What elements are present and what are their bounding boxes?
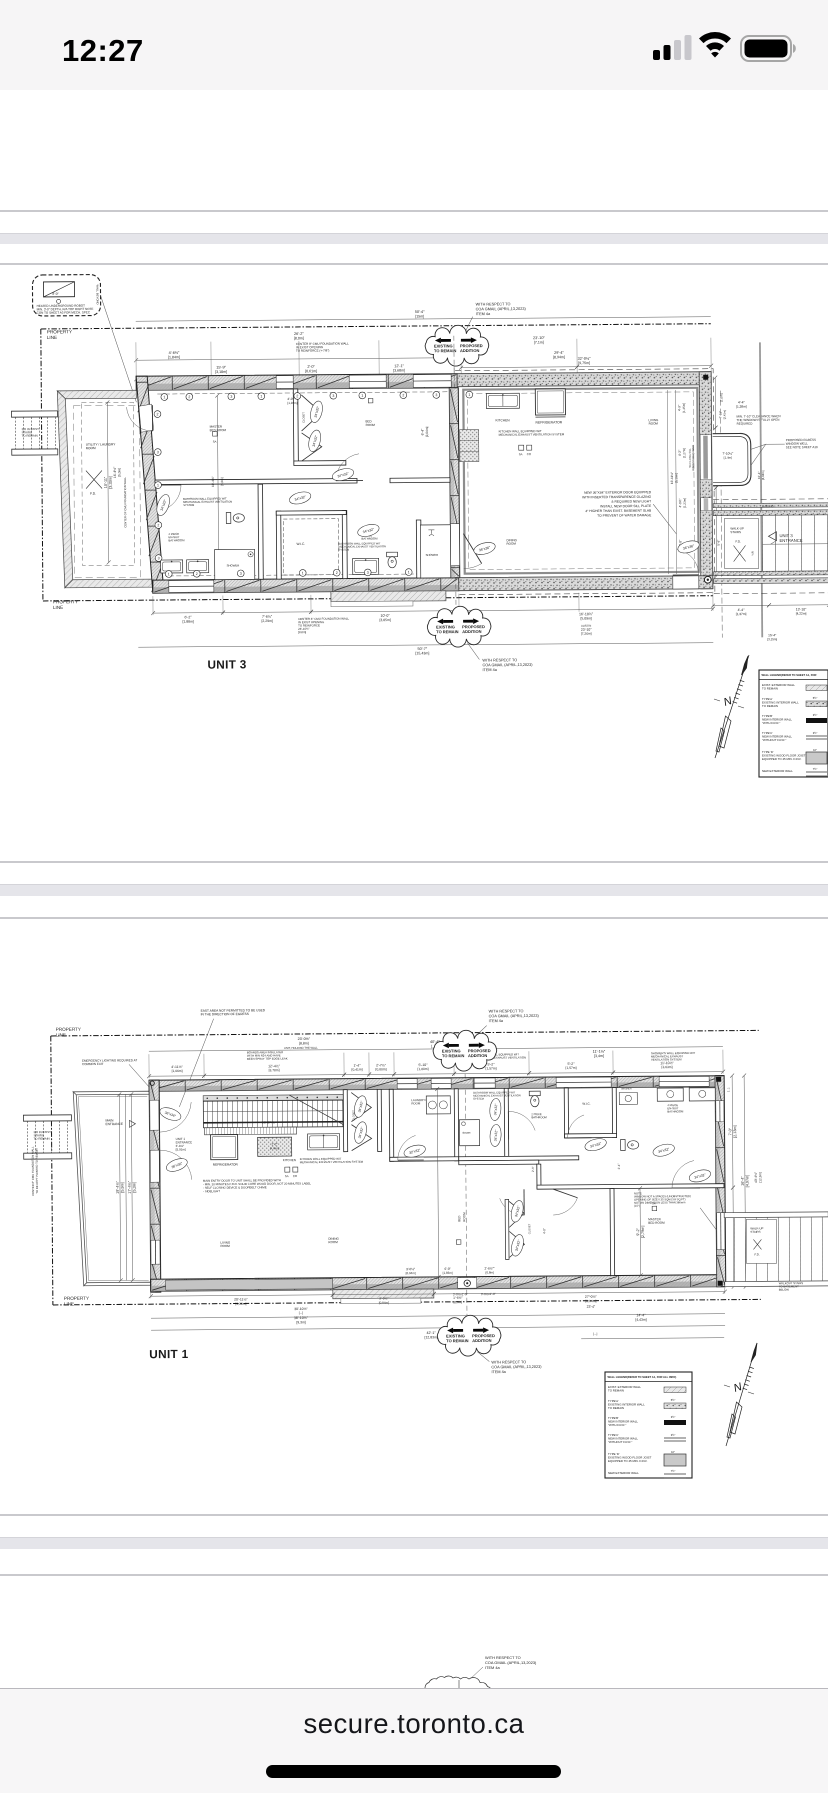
svg-text:CENTER OF CMU FOUNDATION WALL: CENTER OF CMU FOUNDATION WALL [123, 477, 127, 528]
svg-text:W.I.C.: W.I.C. [582, 1102, 590, 1106]
svg-text:TO REMAIN: TO REMAIN [446, 1338, 469, 1343]
svg-text:WITH RESPECT TO: WITH RESPECT TO [482, 658, 517, 662]
svg-text:½R: ½R [751, 551, 755, 555]
svg-text:UNIT 1: UNIT 1 [149, 1347, 188, 1361]
svg-text:[1,57m]: [1,57m] [566, 1066, 577, 1070]
svg-text:4'-0": 4'-0" [542, 1228, 546, 1234]
svg-text:ROOM: ROOM [86, 446, 96, 450]
svg-text:[2,13m]: [2,13m] [733, 1125, 737, 1138]
svg-text:1: 1 [468, 393, 470, 397]
svg-text:16'-4½": 16'-4½" [211, 476, 215, 487]
svg-text:TO REMAIN: TO REMAIN [608, 1389, 624, 1393]
svg-text:[1,27m]: [1,27m] [682, 448, 686, 458]
svg-text:IN THE DIRECTION OF EGRESS: IN THE DIRECTION OF EGRESS [201, 1012, 249, 1016]
svg-text:[0,61m]: [0,61m] [305, 369, 317, 373]
svg-text:[5,0m]: [5,0m] [117, 468, 121, 477]
svg-text:[4,43m]: [4,43m] [635, 1318, 646, 1322]
svg-text:10'-11": 10'-11" [104, 476, 108, 488]
svg-text:1: 1 [168, 572, 170, 576]
svg-text:[0,5m]: [0,5m] [454, 1300, 463, 1304]
svg-text:[1,84m]: [1,84m] [168, 355, 180, 359]
svg-text:8'-0": 8'-0" [52, 292, 58, 296]
svg-text:ROOM: ROOM [328, 1240, 338, 1244]
svg-text:[8,8m]: [8,8m] [298, 630, 306, 634]
svg-text:CLOSET: CLOSET [527, 1223, 531, 1234]
svg-text:[1,37m]: [1,37m] [736, 612, 747, 616]
svg-text:BELOW: BELOW [779, 1288, 789, 1292]
svg-text:[1,57m]: [1,57m] [486, 1066, 497, 1070]
svg-text:REFRIGERATOR: REFRIGERATOR [213, 1163, 239, 1167]
svg-text:WITH RESPECT TO: WITH RESPECT TO [491, 1360, 526, 1364]
svg-text:1: 1 [302, 571, 304, 575]
svg-text:BATHROOM: BATHROOM [168, 538, 185, 542]
svg-text:NEW EXTERIOR WALL: NEW EXTERIOR WALL [608, 1471, 639, 1475]
svg-text:PROPERTY: PROPERTY [64, 1296, 89, 1301]
svg-text:COMMON EXIT: COMMON EXIT [82, 1062, 104, 1066]
svg-text:STAIRS: STAIRS [750, 1230, 760, 1234]
svg-text:[5,3m]: [5,3m] [133, 1182, 137, 1193]
svg-text:ITEM 4a: ITEM 4a [489, 1019, 504, 1023]
svg-text:5'-8": 5'-8" [716, 540, 720, 546]
svg-text:ITEM 4a: ITEM 4a [491, 1370, 506, 1374]
svg-text:SA: SA [213, 440, 217, 444]
svg-text:[0,94m]: [0,94m] [406, 1271, 416, 1275]
svg-text:[8,94m]: [8,94m] [553, 355, 565, 359]
svg-text:STAIRS: STAIRS [730, 530, 741, 534]
svg-text:[8,94m]: [8,94m] [585, 1299, 596, 1303]
svg-text:3½": 3½" [813, 713, 818, 717]
svg-text:[6,38m]: [6,38m] [235, 1302, 246, 1306]
svg-text:7'-0": 7'-0" [728, 1127, 732, 1135]
svg-text:TO PREVENT OF WATER DAMAGE: TO PREVENT OF WATER DAMAGE [597, 513, 652, 517]
svg-text:- SIDELIGHT: - SIDELIGHT [203, 1189, 220, 1193]
svg-text:"WITHOUT F.R.R.": "WITHOUT F.R.R." [608, 1440, 632, 1444]
svg-text:[5,09m]: [5,09m] [580, 616, 591, 620]
svg-text:[1,22m]: [1,22m] [287, 401, 297, 405]
svg-text:2: 2 [336, 571, 338, 575]
svg-text:WITH RESPECT TO: WITH RESPECT TO [476, 302, 511, 306]
svg-text:ENTRANCE: ENTRANCE [779, 538, 802, 543]
svg-text:"WITH F.R.R.": "WITH F.R.R." [762, 721, 780, 725]
svg-text:[1,88m]: [1,88m] [182, 620, 193, 624]
svg-text:[1,4m]: [1,4m] [724, 456, 733, 460]
svg-text:[0,80m]: [0,80m] [376, 1067, 387, 1071]
svg-text:[...]: [...] [593, 1332, 597, 1336]
svg-text:3: 3 [332, 394, 334, 398]
svg-text:[2,04m]: [2,04m] [425, 427, 429, 438]
svg-text:[5,0m]: [5,0m] [220, 477, 224, 486]
svg-text:KITCHEN: KITCHEN [496, 418, 511, 422]
svg-text:WITH RESPECT TO: WITH RESPECT TO [489, 1009, 524, 1013]
svg-text:[5,91m]: [5,91m] [176, 1147, 186, 1151]
svg-text:COA GMAIL (APRIL,13,2023): COA GMAIL (APRIL,13,2023) [489, 1014, 540, 1018]
svg-text:23'-4": 23'-4" [587, 1305, 596, 1309]
svg-text:EQUIPPED TO 45 MIN. F.R.R.: EQUIPPED TO 45 MIN. F.R.R. [608, 1459, 648, 1463]
svg-text:TO REMAIN: TO REMAIN [762, 687, 778, 691]
svg-text:COA GMAIL (APRIL,13,2023): COA GMAIL (APRIL,13,2023) [491, 1365, 542, 1369]
svg-text:SYSTEM: SYSTEM [339, 548, 350, 552]
svg-text:SEE NOTE SHEET A10: SEE NOTE SHEET A10 [786, 445, 818, 449]
svg-text:[1,38m]: [1,38m] [736, 405, 747, 409]
svg-text:7½": 7½" [813, 767, 818, 771]
svg-text:1: 1 [361, 394, 363, 398]
svg-text:[7,26m]: [7,26m] [581, 632, 592, 636]
svg-text:[1,0m]: [1,0m] [719, 393, 723, 402]
svg-text:BED ROOM: BED ROOM [210, 428, 227, 432]
svg-text:1: 1 [163, 395, 165, 399]
svg-text:3: 3 [157, 450, 159, 454]
svg-text:SHOWER: SHOWER [426, 553, 439, 557]
svg-text:NEW EXTERIOR WALL: NEW EXTERIOR WALL [762, 769, 793, 773]
svg-text:MECHANICAL EXHAUST VENTILATION: MECHANICAL EXHAUST VENTILATION SYSTEM [499, 432, 565, 437]
svg-text:CO: CO [293, 1174, 298, 1178]
svg-text:[7,1m]: [7,1m] [534, 340, 544, 344]
svg-text:SA: SA [519, 452, 523, 456]
svg-text:3½": 3½" [671, 1433, 676, 1437]
svg-text:SYSTEM: SYSTEM [183, 503, 195, 507]
svg-text:3: 3 [367, 571, 369, 575]
svg-text:TO REMAIN: TO REMAIN [34, 1137, 50, 1141]
svg-text:[...]: [...] [726, 1087, 730, 1091]
svg-text:TO BE KEPT PAINTED TO REMAIN: TO BE KEPT PAINTED TO REMAIN [35, 1148, 39, 1193]
svg-text:ADDITION: ADDITION [460, 348, 479, 353]
svg-text:REFRIGERATOR: REFRIGERATOR [536, 420, 563, 424]
svg-text:[2,79m]: [2,79m] [641, 1225, 645, 1238]
svg-text:TO REMAIN: TO REMAIN [22, 434, 38, 438]
svg-text:F.D.: F.D. [90, 492, 96, 496]
svg-text:NOT AN DIMENSION LESS THAN 380: NOT AN DIMENSION LESS THAN 380mm [634, 1200, 686, 1204]
svg-text:N: N [732, 1381, 743, 1395]
svg-text:ADDITION: ADDITION [472, 1338, 491, 1343]
svg-text:ITEM 4a: ITEM 4a [482, 668, 497, 672]
svg-text:"WITH F.R.R.": "WITH F.R.R." [608, 1423, 626, 1427]
svg-text:W.I.C.: W.I.C. [296, 542, 305, 546]
svg-text:[12,3m]: [12,3m] [758, 1172, 762, 1182]
svg-text:TO REMAIN: TO REMAIN [434, 348, 457, 353]
svg-text:F.D.: F.D. [735, 539, 741, 543]
svg-text:UNIT 3: UNIT 3 [207, 657, 246, 671]
svg-text:[8,0m]: [8,0m] [294, 336, 304, 340]
svg-text:[12,83m]: [12,83m] [425, 1335, 438, 1339]
svg-text:50'-4": 50'-4" [415, 310, 425, 314]
svg-text:3: 3 [435, 393, 437, 397]
svg-text:[5,16m]: [5,16m] [674, 473, 678, 483]
svg-text:3'-0½x1'-0": 3'-0½x1'-0" [481, 1292, 496, 1296]
svg-text:COA GMAIL (APRIL,13,2023): COA GMAIL (APRIL,13,2023) [476, 307, 527, 311]
svg-text:[4,65m]: [4,65m] [270, 1146, 280, 1150]
svg-text:UNIT, HOLDING THE WALL: UNIT, HOLDING THE WALL [284, 1046, 318, 1050]
svg-text:1: 1 [408, 570, 410, 574]
svg-text:[1,06m]: [1,06m] [172, 1069, 183, 1073]
svg-text:2: 2 [196, 572, 198, 576]
svg-text:[1,83m]: [1,83m] [443, 1271, 453, 1275]
svg-text:ROOM: ROOM [411, 1101, 421, 1105]
svg-text:[2,29m]: [2,29m] [261, 619, 272, 623]
svg-text:CON TO SHEET A3 FOR MECH. SPEC: CON TO SHEET A3 FOR MECH. SPEC [37, 310, 91, 314]
svg-text:TO REINFORCE (+-7/8"): TO REINFORCE (+-7/8") [296, 349, 329, 353]
svg-text:10": 10" [813, 748, 817, 752]
svg-text:[9,75m]: [9,75m] [578, 361, 590, 365]
svg-text:ADDITION: ADDITION [468, 1053, 487, 1058]
svg-text:[...]: [...] [299, 1311, 304, 1315]
svg-text:[4,97m]: [4,97m] [745, 1175, 749, 1188]
svg-text:MECHANICAL EXHAUST VENTILATION: MECHANICAL EXHAUST VENTILATION SYSTEM [300, 1160, 364, 1165]
svg-text:CO: CO [527, 452, 532, 456]
svg-text:2: 2 [296, 394, 298, 398]
svg-text:ROOM: ROOM [366, 423, 376, 427]
svg-text:[1,23m]: [1,23m] [683, 498, 687, 508]
svg-text:[3,05m]: [3,05m] [379, 618, 390, 622]
svg-text:WALL BEYOND: WALL BEYOND [95, 285, 99, 305]
svg-text:ROOM: ROOM [649, 422, 659, 426]
svg-text:(15"): (15") [634, 1204, 640, 1208]
svg-text:WALL LEGEND(REFER TO SHEET A1,: WALL LEGEND(REFER TO SHEET A1, FOR [762, 673, 817, 677]
svg-text:CLOSET: CLOSET [301, 412, 305, 423]
svg-text:KITCHEN: KITCHEN [283, 1158, 296, 1162]
svg-text:LINE: LINE [47, 335, 57, 340]
svg-text:ENTRANCE: ENTRANCE [105, 1122, 123, 1126]
svg-text:1: 1 [157, 483, 159, 487]
svg-text:7½": 7½" [671, 1469, 676, 1473]
svg-text:PROPERTY: PROPERTY [53, 599, 78, 604]
svg-text:WINDOW REQUIRED: WINDOW REQUIRED [691, 445, 695, 471]
svg-text:GENERAL: GENERAL [261, 1120, 275, 1124]
svg-text:ROOM: ROOM [220, 1244, 230, 1248]
svg-text:3: 3 [230, 395, 232, 399]
svg-text:19'-4½": 19'-4½" [116, 1180, 120, 1194]
svg-text:5½": 5½" [671, 1398, 676, 1402]
svg-text:BATHROOM: BATHROOM [531, 1115, 547, 1119]
svg-text:[2,41m]: [2,41m] [722, 410, 726, 420]
svg-text:[9,3m]: [9,3m] [296, 1320, 306, 1324]
svg-text:2'-6": 2'-6" [531, 1166, 535, 1172]
svg-text:BATHROOM: BATHROOM [361, 537, 378, 541]
svg-text:BEEN SPRAY TOP EDGE LEAK: BEEN SPRAY TOP EDGE LEAK [247, 1057, 288, 1061]
svg-text:2'-4": 2'-4" [617, 1164, 621, 1170]
svg-text:WALL LEGEND(REFER TO SHEET A1,: WALL LEGEND(REFER TO SHEET A1, FOR ALL I… [608, 1375, 677, 1379]
svg-text:[15m]: [15m] [415, 314, 424, 318]
svg-text:[3,18m]: [3,18m] [215, 370, 227, 374]
svg-text:LINE: LINE [64, 1301, 74, 1306]
svg-text:SHOWER: SHOWER [227, 563, 240, 567]
svg-text:[5,9m]: [5,9m] [121, 1182, 125, 1193]
svg-text:[3,63m]: [3,63m] [662, 1065, 673, 1069]
svg-text:EQUIPPED TO 45 MIN. F.R.R.: EQUIPPED TO 45 MIN. F.R.R. [762, 757, 802, 761]
svg-text:ROOM: ROOM [506, 542, 516, 546]
svg-text:BED ROOM: BED ROOM [648, 1221, 665, 1225]
svg-text:2: 2 [402, 393, 404, 397]
svg-text:[1,80m]: [1,80m] [418, 1067, 429, 1071]
svg-text:[0,8m]: [0,8m] [485, 1271, 494, 1275]
svg-text:TO REMAIN: TO REMAIN [442, 1053, 465, 1058]
svg-text:1: 1 [260, 395, 262, 399]
svg-text:PROPERTY: PROPERTY [47, 329, 72, 334]
svg-text:[0,94m]: [0,94m] [379, 1301, 389, 1305]
svg-text:[3,68m]: [3,68m] [393, 369, 405, 373]
svg-text:5½": 5½" [813, 696, 818, 700]
svg-text:WASHER: WASHER [621, 1087, 632, 1090]
svg-text:REQUIRED: REQUIRED [737, 422, 754, 426]
svg-text:16'-4": 16'-4" [741, 1176, 745, 1186]
svg-text:BATHROOM: BATHROOM [667, 1109, 684, 1113]
svg-text:2: 2 [157, 523, 159, 527]
svg-text:[1,45m]: [1,45m] [682, 403, 686, 413]
svg-text:N: N [722, 695, 733, 709]
svg-text:SHWR: SHWR [463, 1131, 471, 1135]
svg-text:ROOM: ROOM [462, 1212, 466, 1222]
svg-text:BED: BED [457, 1215, 461, 1222]
svg-text:SYSTEM: SYSTEM [473, 1097, 484, 1101]
svg-text:17'-4½": 17'-4½" [128, 1180, 132, 1194]
svg-text:LINE: LINE [56, 1032, 66, 1037]
svg-text:[15,43m]: [15,43m] [415, 651, 429, 655]
svg-text:ITEM 4a: ITEM 4a [476, 312, 491, 316]
svg-text:TO REMAIN: TO REMAIN [436, 629, 459, 634]
svg-text:3: 3 [158, 556, 160, 560]
svg-text:[4,22m]: [4,22m] [796, 612, 807, 616]
svg-text:2: 2 [156, 412, 158, 416]
svg-text:"WITHOUT F.R.R.": "WITHOUT F.R.R." [762, 738, 786, 742]
svg-text:COA GMAIL (APRIL,13,2023): COA GMAIL (APRIL,13,2023) [482, 663, 533, 667]
svg-text:2: 2 [188, 395, 190, 399]
svg-text:[8,8m]: [8,8m] [299, 1041, 309, 1045]
svg-text:RAILING: RAILING [762, 504, 774, 508]
svg-text:[3,4m]: [3,4m] [594, 1054, 604, 1058]
svg-text:F.D.: F.D. [755, 1252, 760, 1256]
svg-text:SA: SA [285, 1174, 289, 1178]
svg-text:9'-2": 9'-2" [636, 1227, 640, 1235]
svg-text:3: 3 [240, 572, 242, 576]
svg-text:ITEM 4a: ITEM 4a [485, 1665, 501, 1670]
svg-text:TO REMAIN: TO REMAIN [762, 704, 778, 708]
svg-text:[3,15m]: [3,15m] [767, 637, 777, 641]
svg-text:[3,78m]: [3,78m] [269, 1068, 280, 1072]
svg-text:TO REMAIN: TO REMAIN [608, 1406, 624, 1410]
svg-text:10": 10" [671, 1450, 675, 1454]
svg-text:[0,41m]: [0,41m] [352, 1068, 363, 1072]
svg-text:3½": 3½" [813, 731, 818, 735]
svg-text:[4,98m]: [4,98m] [761, 470, 765, 480]
svg-text:ADDITION: ADDITION [462, 629, 481, 634]
svg-text:PROPERTY: PROPERTY [56, 1027, 81, 1032]
svg-text:3½": 3½" [671, 1415, 676, 1419]
svg-text:LINE: LINE [53, 605, 63, 610]
